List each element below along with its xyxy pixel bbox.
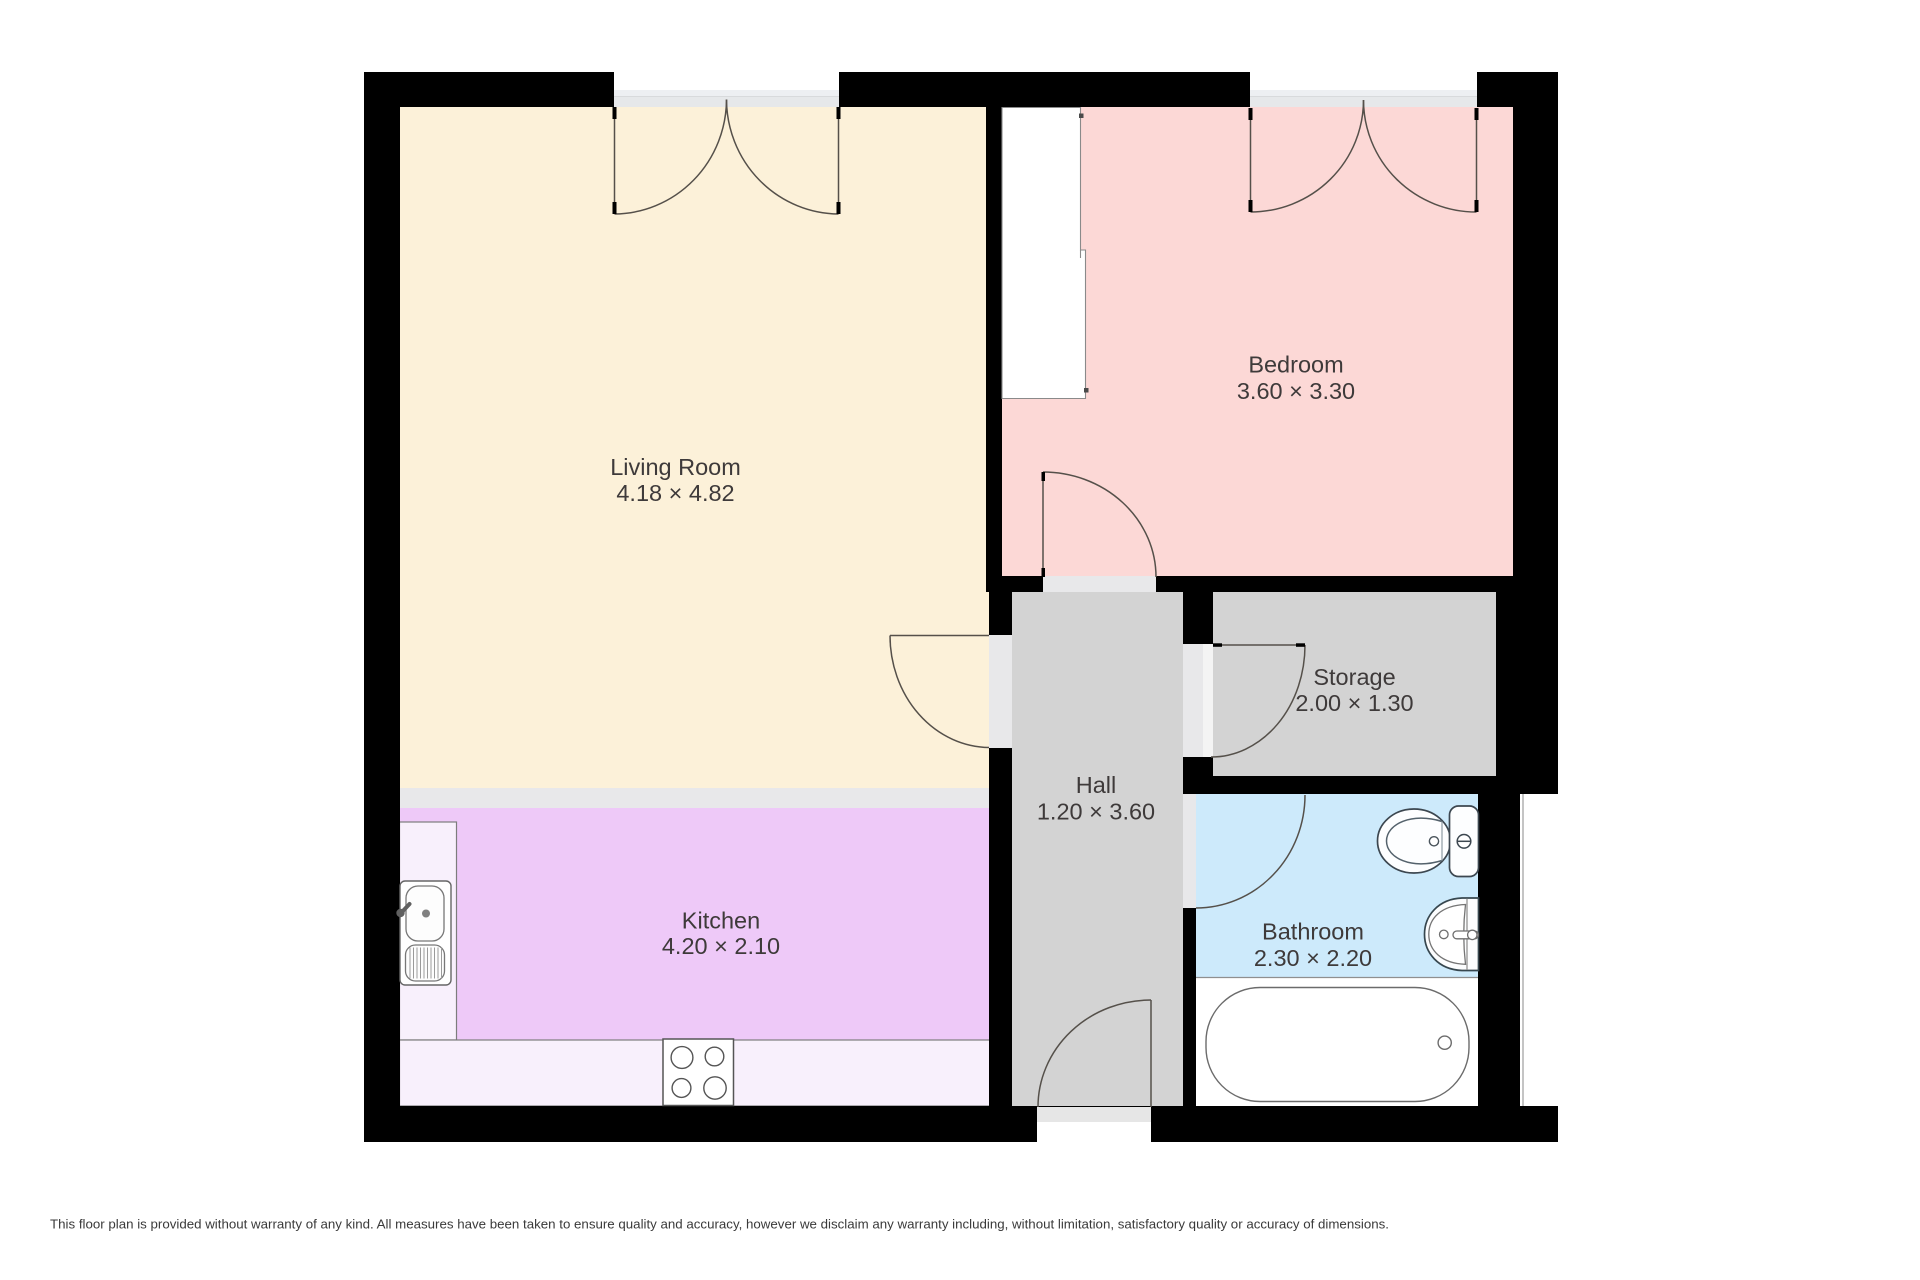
svg-text:Living Room: Living Room bbox=[610, 454, 741, 480]
svg-text:Hall: Hall bbox=[1076, 772, 1116, 798]
svg-text:4.20 × 2.10: 4.20 × 2.10 bbox=[662, 933, 780, 959]
svg-text:4.18 × 4.82: 4.18 × 4.82 bbox=[616, 480, 734, 506]
svg-text:Bathroom: Bathroom bbox=[1262, 918, 1364, 944]
svg-text:Kitchen: Kitchen bbox=[682, 908, 760, 934]
svg-text:Storage: Storage bbox=[1313, 664, 1395, 690]
svg-text:This floor plan is provided wi: This floor plan is provided without warr… bbox=[50, 1217, 1389, 1232]
svg-text:2.00 × 1.30: 2.00 × 1.30 bbox=[1295, 690, 1413, 716]
svg-text:3.60 × 3.30: 3.60 × 3.30 bbox=[1237, 378, 1355, 404]
svg-text:2.30 × 2.20: 2.30 × 2.20 bbox=[1254, 945, 1372, 971]
svg-text:1.20 × 3.60: 1.20 × 3.60 bbox=[1037, 798, 1155, 824]
svg-text:Bedroom: Bedroom bbox=[1248, 351, 1343, 377]
